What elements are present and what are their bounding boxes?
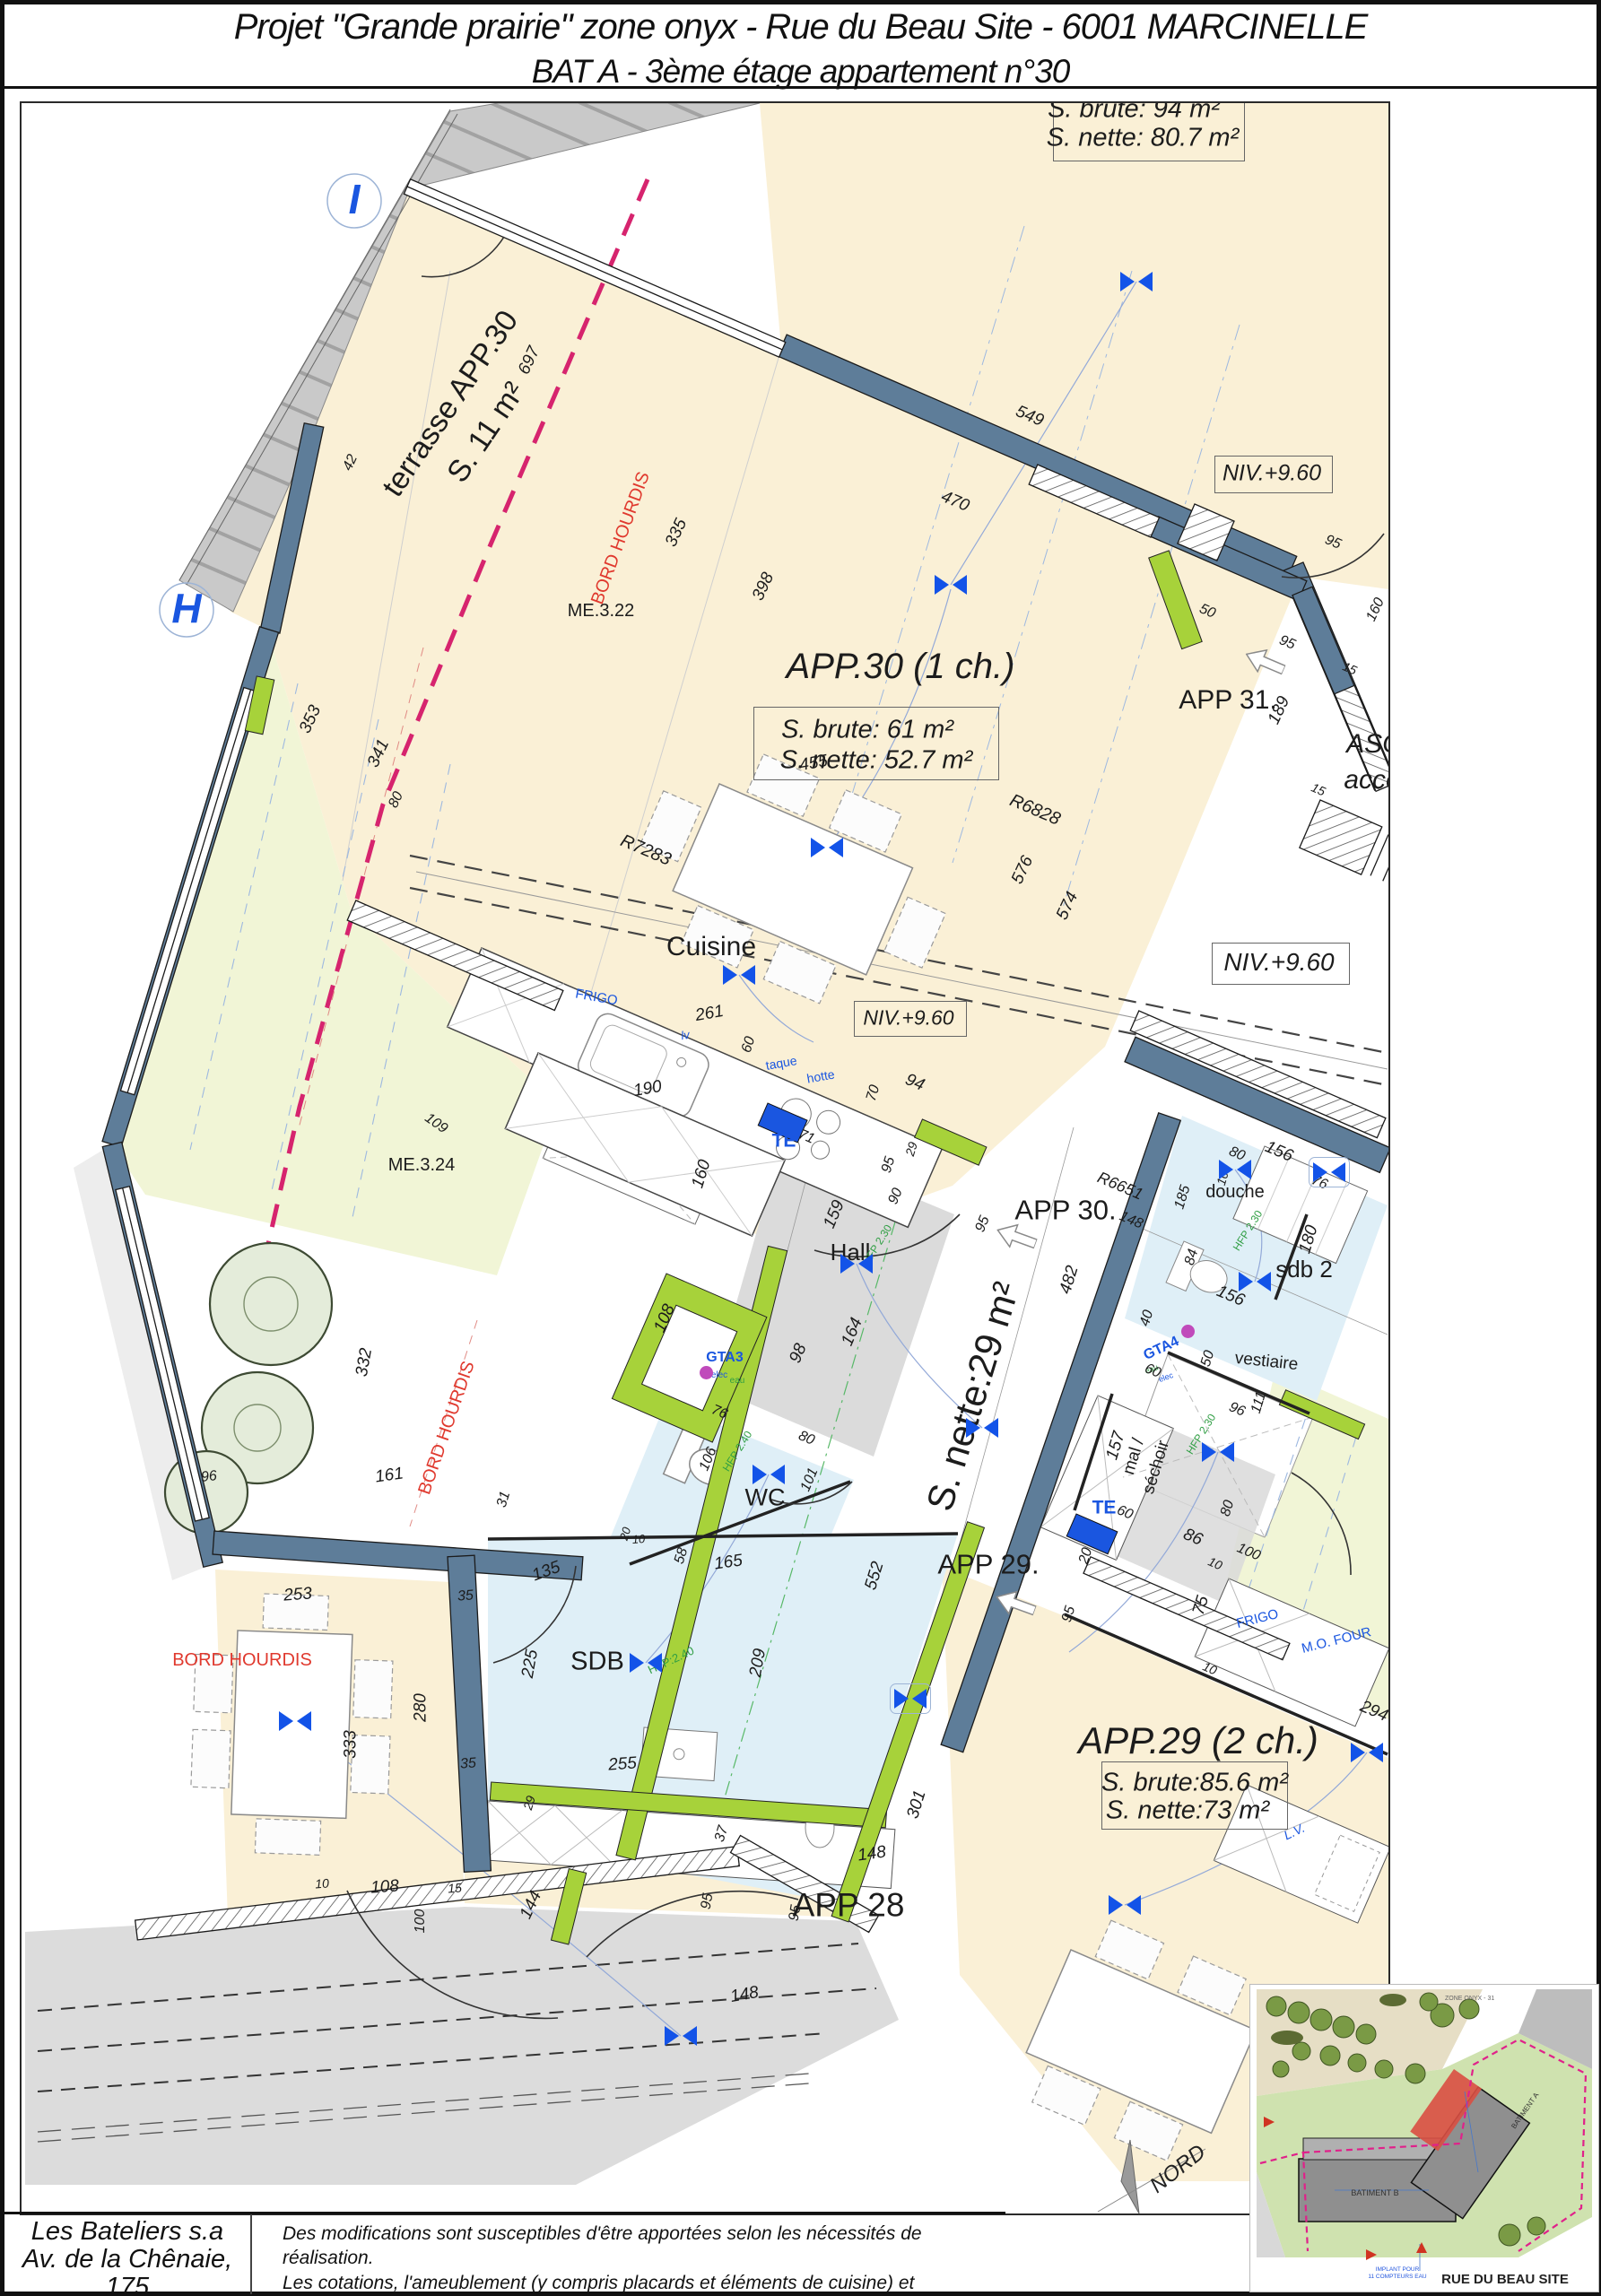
dimension-label: 95 [1277, 633, 1298, 653]
compass-needle-icon [1121, 2140, 1139, 2213]
bord-hourdis-1: BORD HOURDIS [588, 469, 653, 606]
room-sdb2: sdb 2 [1275, 1257, 1333, 1281]
door-me324: ME.3.24 [388, 1156, 455, 1174]
dimension-label: 335 [663, 517, 691, 550]
dimension-label: 31 [495, 1490, 514, 1509]
dimension-label: 160 [689, 1158, 713, 1190]
dimension-label: 98 [787, 1342, 810, 1366]
dimension-label: 35 [460, 1756, 477, 1771]
dimension-label: 165 [713, 1552, 744, 1572]
dimension-label: 95 [1323, 533, 1344, 552]
room-douche: douche [1205, 1183, 1265, 1201]
dimension-label: 94 [903, 1071, 927, 1094]
utility-dot-icon [700, 1366, 713, 1379]
dimension-label: 50 [1197, 602, 1218, 622]
dimension-label: 108 [651, 1302, 678, 1335]
dimension-label: 10 [315, 1876, 330, 1890]
dimension-label: 160 [1364, 596, 1388, 624]
light-symbol-icon [839, 1251, 874, 1276]
dimension-label: 161 [374, 1465, 405, 1485]
dimension-label: 280 [413, 1693, 430, 1722]
building-b-label: BATIMENT B [1351, 2188, 1398, 2197]
project-title: Projet "Grande prairie" zone onyx - Rue … [4, 7, 1597, 48]
dimension-label: 20 [618, 1526, 633, 1542]
dimension-label: 90 [886, 1187, 906, 1207]
dimension-label: 108 [370, 1877, 400, 1896]
dimension-label: 40 [1138, 1309, 1157, 1328]
dimension-label: 50 [1199, 1349, 1218, 1369]
dimension-label: 135 [530, 1559, 562, 1585]
dimension-label: 10 [631, 1533, 645, 1545]
dimension-label: 95 [787, 1904, 805, 1922]
dimension-label: 148 [1118, 1209, 1145, 1231]
plan-text: elec [711, 1371, 727, 1380]
app31-label: APP 31. [1179, 687, 1277, 714]
dimension-label: 341 [365, 737, 393, 770]
dimension-label: 70 [865, 1083, 883, 1103]
dimension-label: 190 [632, 1078, 664, 1100]
utility-dot-icon [1181, 1325, 1195, 1338]
dimension-label: 10 [1201, 1660, 1219, 1677]
dimension-label: 100 [1235, 1541, 1263, 1563]
dimension-label: 96 [200, 1469, 217, 1485]
dimension-label: 37 [713, 1824, 732, 1844]
dimension-label: 253 [283, 1585, 313, 1604]
dimension-label: 111 [1249, 1390, 1269, 1415]
light-symbol-icon [721, 962, 757, 987]
app30-tag: APP 30. [1014, 1196, 1116, 1224]
dimension-label: 95 [880, 1155, 899, 1175]
app28-label: APP 28 [793, 1889, 905, 1922]
dimension-label: 148 [729, 1984, 761, 2005]
dimension-label: 71 [796, 1127, 817, 1147]
dimension-label: 353 [297, 703, 325, 736]
floor-plan: IHterrasse APP.30S. 11 m²S. brute: 94 m²… [20, 101, 1390, 2215]
app29-tag: APP 29. [937, 1551, 1039, 1578]
disclaimer-line: Des modifications sont susceptibles d'êt… [283, 2222, 1005, 2271]
dimension-label: 470 [939, 488, 972, 515]
level-right: NIV.+9.60 [1223, 950, 1334, 975]
light-symbol-icon [809, 835, 845, 860]
room-wc: WC [745, 1486, 786, 1510]
app30-sbrute: S. brute: 61 m² [781, 717, 953, 744]
dimension-label: 80 [387, 790, 406, 811]
dimension-label: 95 [1060, 1605, 1079, 1624]
dimension-label: 148 [857, 1843, 887, 1864]
dimension-label: 180 [1296, 1223, 1320, 1256]
compass-label: NORD [1145, 2140, 1210, 2198]
dimension-label: 156 [1263, 1138, 1296, 1165]
dimension-label: 29 [521, 1795, 537, 1812]
plan-text: HFP 2.40 [721, 1429, 754, 1473]
dimension-label: 697 [516, 344, 544, 378]
disclaimer-block: Des modifications sont susceptibles d'êt… [252, 2214, 1005, 2294]
company-address: Av. de la Chênaie, 175 [4, 2246, 250, 2296]
dimension-label: 576 [1009, 854, 1037, 887]
plan-text: R7283 [618, 831, 674, 868]
zone-note: ZONE ONYX - 31 [1445, 1996, 1494, 2002]
dimension-label: 80 [1219, 1499, 1238, 1518]
direction-arrow-icon [991, 1583, 1040, 1624]
dimension-label: 209 [747, 1648, 769, 1679]
dimension-label: 42 [341, 453, 361, 474]
dimension-label: 15 [1310, 781, 1327, 798]
light-symbol-icon [277, 1709, 313, 1734]
level-mid: NIV.+9.60 [863, 1008, 953, 1029]
dimension-label: 20 [1077, 1546, 1096, 1566]
light-symbol-icon [663, 2023, 699, 2048]
room-sdb: SDB [570, 1649, 624, 1675]
north-compass: NORD [1092, 2135, 1218, 2233]
dimension-label: 29 [903, 1141, 919, 1158]
dimension-label: 10 [1206, 1555, 1224, 1572]
street-label: RUE DU BEAU SITE [1441, 2272, 1569, 2287]
dimension-label: 482 [1057, 1264, 1081, 1296]
dimension-label: 60 [1115, 1503, 1135, 1523]
dimension-label: 106 [697, 1446, 719, 1474]
plan-text: HFP 2.30 [1231, 1208, 1265, 1252]
dimension-label: 35 [457, 1588, 474, 1604]
asc-label: ASC [1346, 731, 1390, 758]
sheet-subtitle: BAT A - 3ème étage appartement n°30 [4, 53, 1597, 91]
te-2: TE [1092, 1499, 1117, 1518]
plan-text: eau [730, 1377, 745, 1386]
dimension-label: 95 [973, 1214, 993, 1235]
dimension-label: 58 [673, 1546, 692, 1566]
mo-four: M.O. FOUR [1301, 1625, 1372, 1656]
light-symbol-icon [1118, 269, 1154, 294]
bord-hourdis-2: BORD HOURDIS [415, 1359, 478, 1497]
dimension-label: 75 [1190, 1594, 1212, 1617]
dimension-label: 574 [1054, 890, 1082, 923]
dimension-label: 95 [700, 1892, 717, 1910]
light-symbol-icon [751, 1462, 787, 1487]
dimension-label: 109 [422, 1111, 449, 1136]
dimension-label: 144 [518, 1889, 545, 1922]
plan-labels-layer: IHterrasse APP.30S. 11 m²S. brute: 94 m²… [20, 101, 1390, 2215]
light-symbol-icon [964, 1415, 1000, 1440]
dimension-label: 552 [862, 1560, 886, 1592]
light-symbol-icon [933, 572, 969, 597]
dimension-label: 60 [740, 1035, 759, 1055]
room-vestiaire: vestiaire [1234, 1350, 1299, 1373]
light-symbol-icon [628, 1650, 664, 1675]
bord-hourdis-3: BORD HOURDIS [172, 1651, 312, 1669]
plan-text: lv [680, 1029, 691, 1041]
dimension-label: 398 [750, 570, 778, 604]
water-note-1: IMPLANT POUR [1376, 2266, 1420, 2273]
water-note-2: 11 COMPTEURS EAU [1368, 2274, 1427, 2280]
gta4: GTA4 [1142, 1335, 1181, 1363]
dimension-label: 255 [608, 1754, 638, 1773]
dimension-label: 96 [1227, 1400, 1248, 1420]
dimension-label: 185 [1172, 1184, 1193, 1211]
frigo-label: FRIGO [574, 987, 618, 1007]
section-marker-i: I [349, 178, 361, 220]
plan-text: hotte [805, 1067, 835, 1084]
light-symbol-icon [892, 1686, 928, 1711]
dimension-label: 455 [798, 752, 830, 774]
company-name: Les Bateliers s.a [4, 2218, 250, 2246]
plan-text: R6828 [1007, 791, 1063, 828]
title-block: Projet "Grande prairie" zone onyx - Rue … [4, 0, 1597, 89]
light-symbol-icon [1107, 1892, 1143, 1918]
dimension-label: 261 [694, 1003, 726, 1024]
disclaimer-line: Les cotations, l'ameublement (y compris … [283, 2271, 1005, 2296]
app30-title: APP.30 (1 ch.) [787, 648, 1015, 684]
light-symbol-icon [1237, 1269, 1273, 1294]
app29-sbrute: S. brute:85.6 m² [1101, 1770, 1288, 1796]
frigo-label-2: FRIGO [1235, 1607, 1280, 1631]
room-cuisine: Cuisine [666, 934, 756, 961]
app-top-sbrute: S. brute: 94 m² [1048, 101, 1220, 123]
dimension-label: 76 [709, 1403, 730, 1422]
dimension-label: 164 [839, 1316, 866, 1349]
site-plan: BATIMENT B BATIMENT A RUE DU BEAU SITE Z… [1249, 1984, 1599, 2292]
light-symbol-icon [1200, 1439, 1236, 1465]
section-marker-h: H [171, 587, 201, 629]
dimension-label: 101 [798, 1466, 821, 1494]
dimension-label: 15 [1341, 660, 1359, 677]
dimension-label: 15 [448, 1881, 463, 1894]
dimension-label: 80 [796, 1429, 817, 1448]
gta3: GTA3 [706, 1351, 743, 1365]
light-symbol-icon [1349, 1740, 1385, 1765]
dimension-label: 84 [1183, 1248, 1202, 1267]
dimension-label: 159 [821, 1198, 848, 1231]
light-symbol-icon [1217, 1157, 1253, 1182]
dimension-label: 301 [904, 1788, 928, 1821]
dimension-label: 225 [519, 1648, 541, 1680]
level-top: NIV.+9.60 [1223, 463, 1321, 485]
dimension-label: 333 [343, 1730, 360, 1759]
corridor-area: S. nette:29 m² [920, 1278, 1025, 1516]
app29-snette: S. nette:73 m² [1106, 1798, 1269, 1824]
dimension-label: 549 [1014, 403, 1047, 430]
asc-label2: acce [1344, 767, 1390, 794]
app-top-snette: S. nette: 80.7 m² [1047, 126, 1239, 152]
dimension-label: 100 [413, 1909, 428, 1934]
plan-text: taque [765, 1054, 798, 1072]
drawing-sheet: Projet "Grande prairie" zone onyx - Rue … [0, 0, 1601, 2296]
dimension-label: 332 [353, 1347, 375, 1378]
te-1: TE [772, 1132, 796, 1151]
dimension-label: 86 [1181, 1526, 1205, 1549]
company-block: Les Bateliers s.a Av. de la Chênaie, 175… [4, 2214, 252, 2294]
app29-title: APP.29 (2 ch.) [1078, 1722, 1318, 1760]
footer-block: Les Bateliers s.a Av. de la Chênaie, 175… [4, 2212, 1005, 2294]
light-symbol-icon [1311, 1160, 1347, 1185]
dimension-label: 294 [1358, 1698, 1390, 1725]
